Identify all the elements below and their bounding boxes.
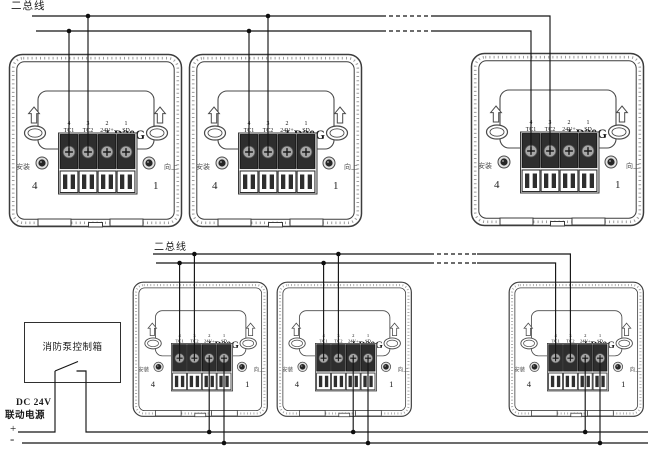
- ld20g-module-bottom-2: LD20G 安装 向上 4 1 4 TC1 3 TC2: [276, 281, 413, 418]
- power-supply-label-line1: DC 24V: [16, 398, 51, 408]
- terminal-number: 4: [530, 120, 533, 126]
- ld20g-module-drawing: LD20G 安装 向上 4 1 4 TC1 3 TC2: [276, 281, 413, 418]
- mounting-slot-inner: [150, 129, 164, 137]
- terminal-name: SD: [221, 338, 228, 343]
- junction-dot: [86, 14, 91, 19]
- install-side-label: 安装: [478, 161, 492, 170]
- terminal-number: 2: [286, 121, 289, 127]
- up-side-label: 向上: [344, 162, 358, 171]
- terminal-number: 4: [248, 121, 251, 127]
- junction-dot: [351, 430, 356, 435]
- fire-pump-control-box: 消防泵控制箱: [24, 322, 121, 383]
- terminal-name: SD: [302, 128, 310, 134]
- bottom-tab: [218, 219, 251, 226]
- junction-dot: [177, 261, 182, 266]
- bottom-tab: [299, 410, 325, 415]
- up-side-label: 向上: [626, 161, 640, 170]
- terminal-number: 2: [106, 121, 109, 127]
- corner-number-right: 1: [153, 180, 159, 192]
- terminal-number: 3: [267, 121, 270, 127]
- bottom-center-tab: [195, 413, 206, 417]
- mounting-screw: [381, 362, 390, 371]
- mounting-slot-inner: [208, 129, 222, 137]
- mounting-screw: [613, 362, 622, 371]
- terminal-name: TC2: [545, 127, 556, 133]
- mounting-slot-inner: [330, 129, 344, 137]
- terminal-name: TC1: [526, 127, 537, 133]
- terminal-24v: 2 24V+: [346, 333, 360, 390]
- mounting-screw: [323, 157, 335, 169]
- terminal-24v: 2 24V+: [560, 120, 578, 192]
- junction-dot: [336, 252, 341, 257]
- mounting-slot-inner: [490, 128, 504, 136]
- terminal-name: 24V+: [280, 128, 294, 134]
- junction-dot: [266, 14, 271, 19]
- terminal-number: 1: [125, 121, 128, 127]
- wiring-diagram: LD20G 安装 向上 4 1 4 TC1 3 TC2: [0, 0, 665, 463]
- junction-dot: [583, 430, 588, 435]
- terminal-name: TC1: [551, 338, 560, 343]
- junction-dot: [247, 29, 252, 34]
- corner-number-right: 1: [621, 379, 625, 389]
- terminal-name: TC2: [566, 338, 575, 343]
- junction-dot: [598, 441, 603, 446]
- mounting-slot-inner: [28, 129, 42, 137]
- corner-number-right: 1: [333, 180, 339, 192]
- ld20g-module-drawing: LD20G 安装 向上 4 1 4 TC1 3 TC2: [188, 53, 363, 228]
- bottom-tab: [356, 410, 382, 415]
- ld20g-module-bottom-1: LD20G 安装 向上 4 1 4 TC1 3 TC2: [132, 281, 269, 418]
- bottom-tab: [212, 410, 238, 415]
- mounting-slot-inner: [524, 340, 535, 347]
- mounting-screw: [605, 156, 617, 168]
- ld20g-module-drawing: LD20G 安装 向上 4 1 4 TC1 3 TC2: [8, 53, 183, 228]
- terminal-24v: 2 24V+: [578, 333, 592, 390]
- mounting-screw: [143, 157, 155, 169]
- bottom-tab: [588, 410, 614, 415]
- bottom-tab: [290, 219, 323, 226]
- mounting-screw: [216, 157, 228, 169]
- terminal-name: TC1: [175, 338, 184, 343]
- terminal-name: TC1: [64, 128, 75, 134]
- mounting-screw: [298, 362, 307, 371]
- ld20g-module-top-2: LD20G 安装 向上 4 1 4 TC1 3 TC2: [188, 53, 363, 228]
- terminal-name: TC1: [319, 338, 328, 343]
- terminal-number: 3: [549, 120, 552, 126]
- terminal-24v: 2 24V+: [98, 121, 116, 193]
- terminal-number: 1: [305, 121, 308, 127]
- junction-dot: [222, 441, 227, 446]
- mounting-screw: [498, 156, 510, 168]
- ld20g-module-drawing: LD20G 安装 向上 4 1 4 TC1 3 TC2: [470, 52, 645, 227]
- bottom-tab: [110, 219, 143, 226]
- terminal-name: TC2: [263, 128, 274, 134]
- terminal-name: 24V+: [100, 128, 114, 134]
- install-side-label: 安装: [16, 162, 30, 171]
- bottom-bus-label: 二总线: [154, 242, 187, 253]
- up-side-label: 向上: [164, 162, 178, 171]
- terminal-number: 4: [68, 121, 71, 127]
- terminal-name: TC1: [244, 128, 255, 134]
- junction-dot: [67, 29, 72, 34]
- terminal-24v: 2 24V+: [202, 333, 216, 390]
- bottom-center-tab: [89, 223, 103, 228]
- bottom-center-tab: [571, 413, 582, 417]
- terminal-24v: 2 24V+: [278, 121, 296, 193]
- terminal-number: 1: [587, 120, 590, 126]
- ld20g-module-drawing: LD20G 安装 向上 4 1 4 TC1 3 TC2: [508, 281, 645, 418]
- bottom-tab: [531, 410, 557, 415]
- bottom-center-tab: [339, 413, 350, 417]
- power-minus-terminal-label: -: [10, 432, 14, 446]
- junction-dot: [192, 252, 197, 257]
- corner-number-right: 1: [245, 379, 249, 389]
- mounting-slot-inner: [387, 340, 398, 347]
- terminal-name: SD: [365, 338, 372, 343]
- install-side-label: 安装: [196, 162, 210, 171]
- terminal-name: 24V+: [348, 338, 359, 343]
- control-box-label: 消防泵控制箱: [42, 339, 102, 353]
- terminal-name: TC2: [83, 128, 94, 134]
- ld20g-module-drawing: LD20G 安装 向上 4 1 4 TC1 3 TC2: [132, 281, 269, 418]
- corner-number-right: 1: [615, 179, 621, 191]
- corner-number-left: 4: [212, 180, 218, 192]
- power-supply-label-line2: 联动电源: [5, 411, 45, 421]
- mounting-slot-inner: [243, 340, 254, 347]
- terminal-name: 24V+: [580, 338, 591, 343]
- terminal-name: SD: [122, 128, 130, 134]
- terminal-name: 24V+: [562, 127, 576, 133]
- terminal-name: 24V+: [204, 338, 215, 343]
- junction-dot: [321, 261, 326, 266]
- top-bus-label: 二总线: [11, 1, 46, 13]
- terminal-name: TC2: [334, 338, 343, 343]
- bottom-tab: [38, 219, 71, 226]
- bottom-tab: [572, 218, 605, 225]
- corner-number-left: 4: [527, 379, 532, 389]
- mounting-slot-inner: [292, 340, 303, 347]
- ld20g-module-top-3: LD20G 安装 向上 4 1 4 TC1 3 TC2: [470, 52, 645, 227]
- corner-number-left: 4: [295, 379, 300, 389]
- mounting-screw: [36, 157, 48, 169]
- bottom-center-tab: [551, 222, 565, 227]
- mounting-screw: [237, 362, 246, 371]
- mounting-slot-inner: [619, 340, 630, 347]
- junction-dot: [207, 430, 212, 435]
- corner-number-right: 1: [389, 379, 393, 389]
- corner-number-left: 4: [494, 179, 500, 191]
- bottom-center-tab: [269, 223, 283, 228]
- terminal-name: TC2: [190, 338, 199, 343]
- terminal-name: SD: [584, 127, 592, 133]
- ld20g-module-top-1: LD20G 安装 向上 4 1 4 TC1 3 TC2: [8, 53, 183, 228]
- terminal-name: SD: [597, 338, 604, 343]
- terminal-number: 3: [87, 121, 90, 127]
- mounting-slot-inner: [148, 340, 159, 347]
- corner-number-left: 4: [151, 379, 156, 389]
- corner-number-left: 4: [32, 180, 38, 192]
- mounting-screw: [154, 362, 163, 371]
- mounting-screw: [530, 362, 539, 371]
- junction-dot: [366, 441, 371, 446]
- mounting-slot-inner: [612, 128, 626, 136]
- bottom-tab: [155, 410, 181, 415]
- terminal-number: 2: [568, 120, 571, 126]
- ld20g-module-bottom-3: LD20G 安装 向上 4 1 4 TC1 3 TC2: [508, 281, 645, 418]
- bottom-tab: [500, 218, 533, 225]
